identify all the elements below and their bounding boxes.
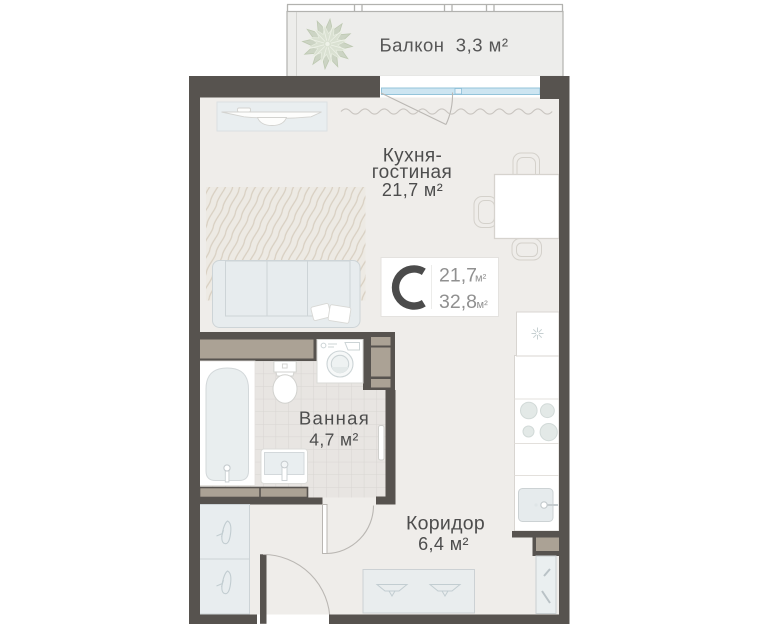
svg-text:Коридор: Коридор <box>406 513 485 535</box>
svg-text:м²: м² <box>475 273 487 285</box>
svg-text:21,7 м²: 21,7 м² <box>382 180 443 200</box>
svg-text:6,4 м²: 6,4 м² <box>418 534 469 554</box>
svg-text:21,7: 21,7 <box>439 265 477 287</box>
svg-text:Балкон 3,3 м²: Балкон 3,3 м² <box>379 35 508 56</box>
svg-text:4,7 м²: 4,7 м² <box>309 430 358 450</box>
svg-text:м²: м² <box>477 299 489 311</box>
svg-text:32,8: 32,8 <box>439 291 477 313</box>
svg-text:Ванная: Ванная <box>299 408 370 429</box>
